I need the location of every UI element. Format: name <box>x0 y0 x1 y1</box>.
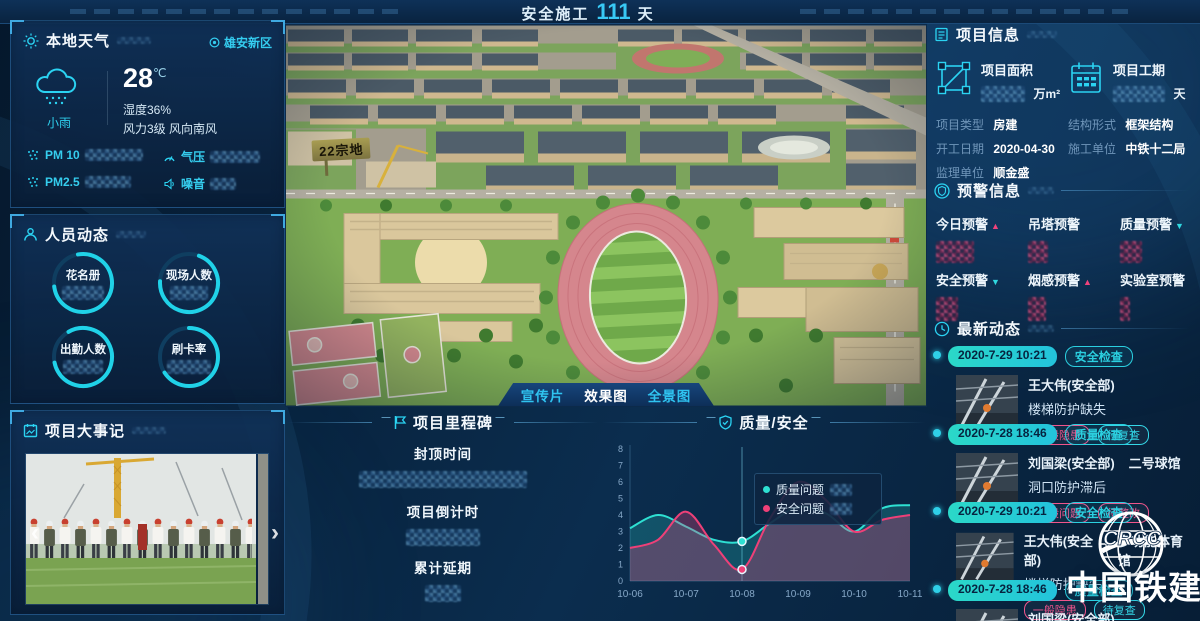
quality-safety-title: 质量/安全 <box>739 412 808 433</box>
milestone-countdown: 项目倒计时 <box>288 501 598 546</box>
warning-smoke: 烟感预警▲ <box>1028 270 1092 321</box>
pm25-metric: PM2.5 <box>27 175 131 189</box>
project-duration-unit: 天 <box>1173 87 1185 101</box>
svg-text:8: 8 <box>618 444 623 454</box>
view-button-render[interactable]: 效果图 <box>584 385 628 405</box>
divider <box>830 422 925 423</box>
onsite-value-redacted <box>170 286 208 300</box>
divider <box>374 417 391 427</box>
noise-label: 噪音 <box>181 175 205 192</box>
roster-value-redacted <box>62 286 104 300</box>
timeline-dot <box>933 507 941 515</box>
condition-label: 小雨 <box>29 114 89 131</box>
structure-type-value: 框架结构 <box>1125 118 1173 132</box>
pm10-label: PM 10 <box>45 148 80 162</box>
swipe-rate-value-redacted <box>167 360 211 374</box>
warning-quality: 质量预警▼ <box>1120 214 1184 263</box>
calendar-photo-icon <box>23 423 38 438</box>
topbar-decor <box>70 9 400 14</box>
svg-text:2: 2 <box>618 543 623 553</box>
project-duration-stat: 项目工期 天 <box>1068 60 1185 103</box>
temperature-unit: ℃ <box>153 66 166 80</box>
project-area-unit: 万m² <box>1033 87 1060 101</box>
entry-time-badge: 2020-7-29 10:21 <box>948 346 1057 367</box>
safe-construction-days: 安全施工 111 天 <box>521 1 654 24</box>
warning-safety-label: 安全预警 <box>936 273 988 288</box>
divider <box>514 422 598 423</box>
area-icon <box>936 60 972 96</box>
entry-type-badge: 安全检查 <box>1065 346 1133 367</box>
safe-days-suffix: 天 <box>638 3 655 24</box>
update-entry[interactable]: 2020-7-28 18:46 质量检查 刘国梁(安全部) <box>934 580 1190 621</box>
noise-value-redacted <box>210 178 236 190</box>
timeline-dot <box>933 585 941 593</box>
swipe-rate-label: 刷卡率 <box>172 341 207 357</box>
redacted-decor <box>1027 31 1057 38</box>
carousel-next-button[interactable]: › <box>271 523 279 543</box>
carousel-prev-button[interactable]: ‹ <box>31 523 39 543</box>
project-area-label: 项目面积 <box>981 60 1060 79</box>
quality-safety-panel: 质量/安全 01234567810-0610-0710-0810-0910-10… <box>602 409 925 613</box>
updates-title: 最新动态 <box>957 318 1021 339</box>
event-photo[interactable] <box>25 453 269 605</box>
safe-days-count: 111 <box>596 1 630 23</box>
pressure-value-redacted <box>210 151 260 163</box>
shield-check-icon <box>718 415 733 430</box>
rain-cloud-icon <box>31 65 87 107</box>
warning-quality-value-redacted <box>1120 241 1142 263</box>
milestone-delay: 累计延期 <box>288 557 598 602</box>
warning-crane-label: 吊塔预警 <box>1028 217 1080 232</box>
inspection-photo <box>956 531 1014 583</box>
inspection-photo <box>956 453 1018 505</box>
topping-time-value-redacted <box>359 471 527 488</box>
quality-series-dot <box>763 486 770 493</box>
mist-icon <box>27 149 40 161</box>
entry-place: 多功能体育馆 <box>1118 531 1190 569</box>
divider <box>1061 328 1190 329</box>
divider <box>811 417 828 427</box>
weather-condition: 小雨 <box>29 65 89 131</box>
location-pin-icon <box>209 37 220 48</box>
project-info-panel: 项目信息 项目面积 万m² <box>934 24 1190 176</box>
humidity-label: 湿度36% <box>123 101 171 118</box>
project-duration-value-redacted <box>1113 86 1165 102</box>
entry-issue: 楼梯防护缺失 <box>1028 399 1149 418</box>
countdown-value-redacted <box>406 529 480 546</box>
dashboard: 安全施工 111 天 本地天气 雄安新区 <box>0 0 1200 621</box>
svg-text:10-07: 10-07 <box>673 589 699 600</box>
trend-down-icon: ▼ <box>1175 221 1184 231</box>
structure-type-label: 结构形式 <box>1068 118 1116 132</box>
entry-person: 刘国梁(安全部) <box>1028 453 1115 472</box>
divider <box>700 417 717 427</box>
timeline-dot <box>933 429 941 437</box>
stat-onsite: 现场人数 <box>155 249 223 317</box>
project-area-stat: 项目面积 万m² <box>936 60 1060 103</box>
warning-safety: 安全预警▼ <box>936 270 1000 321</box>
field-supervisor: 监理单位 顺金盛 <box>936 164 1029 181</box>
wind-label: 风力3级 风向南风 <box>123 120 217 137</box>
calendar-icon <box>1068 60 1104 96</box>
person-icon <box>23 227 38 242</box>
view-switcher: 宣传片 效果图 全景图 <box>498 383 714 406</box>
entry-type-badge: 安全检查 <box>1065 502 1133 523</box>
onsite-label: 现场人数 <box>166 267 212 283</box>
trend-up-icon: ▲ <box>1083 277 1092 287</box>
project-duration-label: 项目工期 <box>1113 60 1185 79</box>
svg-text:10-10: 10-10 <box>841 589 867 600</box>
warning-today-label: 今日预警 <box>936 217 988 232</box>
view-button-promo[interactable]: 宣传片 <box>521 385 565 405</box>
warning-today-value-redacted <box>936 241 974 263</box>
svg-text:10-08: 10-08 <box>729 589 755 600</box>
svg-text:5: 5 <box>618 494 623 504</box>
land-parcel-sign: 22宗地 <box>311 137 370 161</box>
warnings-title: 预警信息 <box>957 180 1021 201</box>
safe-days-prefix: 安全施工 <box>521 3 589 24</box>
warning-lab-label: 实验室预警 <box>1120 273 1185 288</box>
quality-safety-chart: 01234567810-0610-0710-0810-0910-1010-11 … <box>604 435 922 611</box>
timeline-dot <box>933 351 941 359</box>
divider <box>288 422 372 423</box>
svg-text:3: 3 <box>618 527 623 537</box>
start-date-value: 2020-04-30 <box>993 142 1054 156</box>
temperature-value: 28 <box>123 63 153 93</box>
events-title: 项目大事记 <box>45 420 125 441</box>
field-project-type: 项目类型 房建 <box>936 116 1017 133</box>
pm10-metric: PM 10 <box>27 148 143 162</box>
site-render-view[interactable]: 22宗地 宣传片 效果图 全景图 <box>285 24 927 407</box>
milestone-panel: 项目里程碑 封顶时间 项目倒计时 累计延期 <box>288 409 598 613</box>
trend-down-icon: ▼ <box>991 277 1000 287</box>
countdown-label: 项目倒计时 <box>288 501 598 521</box>
entry-type-badge: 质量检查 <box>1065 424 1133 445</box>
document-icon <box>934 27 949 42</box>
location-chip[interactable]: 雄安新区 <box>209 34 272 51</box>
quality-series-label: 质量问题 <box>776 481 824 498</box>
aerial-render <box>286 25 926 406</box>
mist-icon <box>27 176 40 188</box>
personnel-panel: 人员动态 花名册 现场人数 出勤人数 <box>10 214 285 404</box>
redacted-decor <box>117 37 151 44</box>
safety-tip-value-redacted <box>830 503 852 515</box>
entry-place: 二号球馆 <box>1129 453 1181 472</box>
redacted-decor <box>1028 187 1054 194</box>
field-contractor: 施工单位 中铁十二局 <box>1068 140 1185 157</box>
alert-shield-icon <box>934 183 950 199</box>
stat-roster: 花名册 <box>49 249 117 317</box>
attendance-label: 出勤人数 <box>60 341 106 357</box>
noise-metric: 噪音 <box>163 175 236 192</box>
divider <box>1061 190 1190 191</box>
delay-label: 累计延期 <box>288 557 598 577</box>
redacted-decor <box>116 231 146 238</box>
entry-time-badge: 2020-7-28 18:46 <box>948 424 1057 445</box>
chart-tooltip: 质量问题 安全问题 <box>754 473 882 525</box>
topbar-decor <box>800 9 1130 14</box>
quality-tip-value-redacted <box>830 484 852 496</box>
inspection-photo <box>956 375 1018 427</box>
divider <box>602 422 697 423</box>
entry-type-badge: 质量检查 <box>1065 580 1133 601</box>
field-structure-type: 结构形式 框架结构 <box>1068 116 1173 133</box>
pressure-label: 气压 <box>181 148 205 165</box>
stat-attendance: 出勤人数 <box>49 323 117 391</box>
speaker-icon <box>163 178 176 190</box>
weather-panel: 本地天气 雄安新区 小雨 28℃ 湿度36% 风力3级 风向南风 <box>10 20 285 208</box>
pm25-value-redacted <box>85 176 131 188</box>
entry-person: 王大伟(安全部) <box>1028 375 1115 394</box>
temperature: 28℃ <box>123 63 167 94</box>
svg-text:10-11: 10-11 <box>898 589 922 600</box>
pm25-label: PM2.5 <box>45 175 80 189</box>
view-button-panorama[interactable]: 全景图 <box>648 385 692 405</box>
warning-crane-value-redacted <box>1028 241 1048 263</box>
pressure-metric: 气压 <box>163 148 260 165</box>
sun-icon <box>23 33 39 49</box>
svg-text:10-09: 10-09 <box>785 589 811 600</box>
warning-smoke-label: 烟感预警 <box>1028 273 1080 288</box>
entry-issue: 洞口防护滞后 <box>1028 477 1181 496</box>
stat-swipe-rate: 刷卡率 <box>155 323 223 391</box>
supervisor-value: 顺金盛 <box>993 166 1029 180</box>
events-panel: 项目大事记 <box>10 410 285 615</box>
roster-label: 花名册 <box>66 267 101 283</box>
start-date-label: 开工日期 <box>936 142 984 156</box>
project-area-value-redacted <box>981 86 1025 102</box>
milestone-topping-time: 封顶时间 <box>288 443 598 488</box>
field-start-date: 开工日期 2020-04-30 <box>936 140 1055 157</box>
entry-person: 王大伟(安全部) <box>1024 531 1104 569</box>
redacted-decor <box>132 427 166 434</box>
project-info-title: 项目信息 <box>956 24 1020 45</box>
updates-panel: 最新动态 2020-7-29 10:21 安全检查 王大 <box>934 318 1190 621</box>
safety-series-dot <box>763 505 770 512</box>
warning-lab: 实验室预警 <box>1120 270 1185 321</box>
pm10-value-redacted <box>85 149 143 161</box>
flag-icon <box>393 415 407 430</box>
personnel-title: 人员动态 <box>45 224 109 245</box>
project-type-label: 项目类型 <box>936 118 984 132</box>
safety-series-label: 安全问题 <box>776 500 824 517</box>
warning-crane: 吊塔预警 <box>1028 214 1080 263</box>
svg-text:6: 6 <box>618 477 623 487</box>
location-label: 雄安新区 <box>224 34 272 51</box>
entry-time-badge: 2020-7-29 10:21 <box>948 502 1057 523</box>
clock-icon <box>934 321 950 337</box>
project-type-value: 房建 <box>993 118 1017 132</box>
supervisor-label: 监理单位 <box>936 166 984 180</box>
delay-value-redacted <box>425 585 461 602</box>
topping-time-label: 封顶时间 <box>288 443 598 463</box>
milestone-title: 项目里程碑 <box>413 412 493 433</box>
contractor-label: 施工单位 <box>1068 142 1116 156</box>
svg-text:7: 7 <box>618 461 623 471</box>
redacted-decor <box>1028 325 1054 332</box>
attendance-value-redacted <box>63 360 103 374</box>
contractor-value: 中铁十二局 <box>1125 142 1185 156</box>
divider <box>107 71 108 125</box>
entry-time-badge: 2020-7-28 18:46 <box>948 580 1057 601</box>
warning-today: 今日预警▲ <box>936 214 1000 263</box>
warnings-panel: 预警信息 今日预警▲ 吊塔预警 质量预警▼ 安全预警▼ 烟感预警▲ 实验室预警 <box>934 180 1190 314</box>
weather-title: 本地天气 <box>46 30 110 51</box>
svg-text:4: 4 <box>618 510 623 520</box>
gauge-icon <box>163 151 176 163</box>
trend-up-icon: ▲ <box>991 221 1000 231</box>
warning-quality-label: 质量预警 <box>1120 217 1172 232</box>
svg-text:0: 0 <box>618 576 623 586</box>
svg-text:1: 1 <box>618 560 623 570</box>
svg-text:10-06: 10-06 <box>617 589 643 600</box>
divider <box>495 417 512 427</box>
inspection-photo <box>956 609 1018 621</box>
entry-person: 刘国梁(安全部) <box>1028 609 1115 621</box>
